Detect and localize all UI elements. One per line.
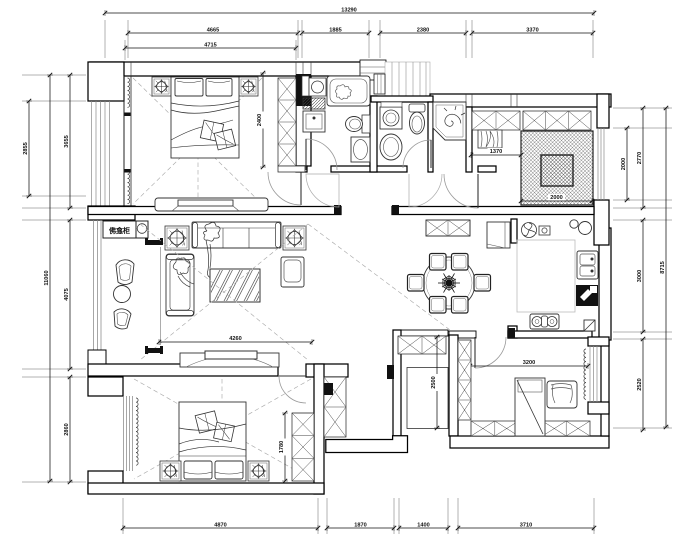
svg-text:3710: 3710 (520, 523, 532, 529)
svg-text:佛龛柜: 佛龛柜 (108, 226, 130, 235)
svg-text:3000: 3000 (637, 270, 643, 282)
svg-text:4665: 4665 (207, 28, 219, 34)
svg-text:13290: 13290 (341, 8, 357, 14)
svg-text:11060: 11060 (44, 270, 50, 285)
svg-text:1870: 1870 (354, 523, 366, 529)
svg-text:2500: 2500 (431, 376, 437, 388)
svg-text:4260: 4260 (229, 336, 241, 342)
svg-text:3200: 3200 (523, 360, 535, 366)
svg-text:4715: 4715 (204, 43, 216, 49)
svg-text:1370: 1370 (490, 149, 502, 155)
svg-text:2770: 2770 (637, 152, 643, 164)
svg-text:2000: 2000 (550, 195, 562, 201)
svg-text:3655: 3655 (64, 135, 70, 147)
svg-text:8715: 8715 (660, 261, 666, 273)
svg-text:2520: 2520 (637, 378, 643, 390)
svg-text:2400: 2400 (257, 114, 263, 126)
svg-text:2000: 2000 (621, 158, 627, 170)
svg-text:2855: 2855 (23, 142, 29, 154)
svg-text:4870: 4870 (214, 523, 226, 529)
svg-text:1780: 1780 (279, 441, 285, 453)
svg-text:4075: 4075 (64, 288, 70, 300)
svg-text:2380: 2380 (417, 28, 429, 34)
svg-text:1400: 1400 (417, 523, 429, 529)
svg-text:3370: 3370 (526, 28, 538, 34)
svg-text:1885: 1885 (329, 28, 341, 34)
svg-text:2860: 2860 (64, 423, 70, 435)
